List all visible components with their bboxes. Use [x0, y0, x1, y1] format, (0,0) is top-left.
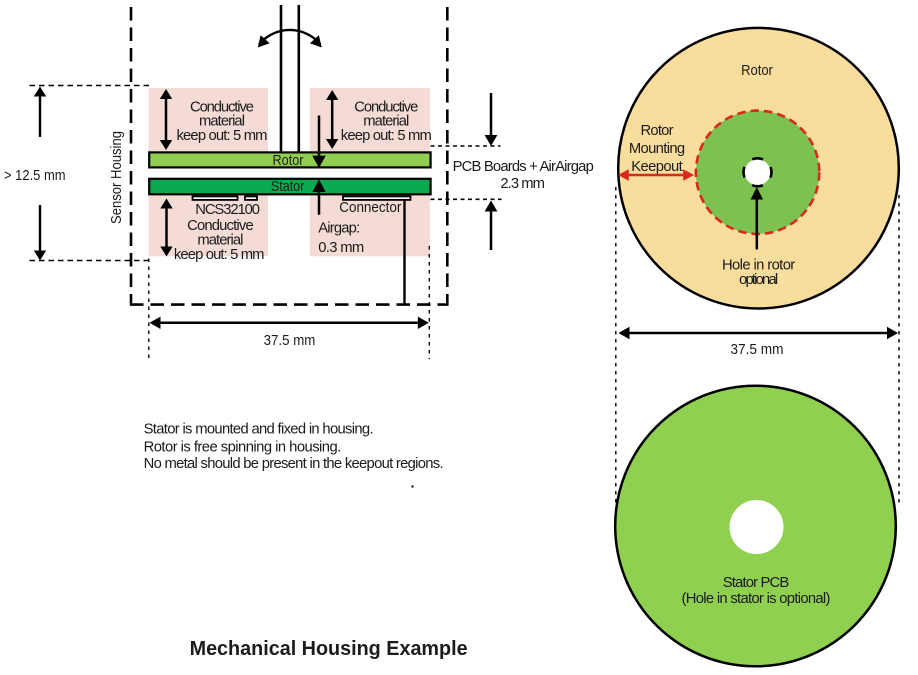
svg-text:Mechanical Housing Example: Mechanical Housing Example — [190, 638, 468, 660]
svg-text:Rotor: Rotor — [741, 63, 773, 79]
svg-text:(Hole in stator is optional): (Hole in stator is optional) — [682, 591, 831, 607]
svg-text:PCB Boards + AirAirgap: PCB Boards + AirAirgap — [453, 159, 594, 175]
svg-text:Rotor is free spinning in hous: Rotor is free spinning in housing. — [144, 440, 342, 456]
svg-text:keep out: 5 mm: keep out: 5 mm — [174, 247, 265, 263]
svg-text:Connector: Connector — [339, 200, 401, 216]
svg-text:Rotor: Rotor — [273, 153, 304, 169]
svg-text:NCS32100: NCS32100 — [195, 202, 260, 218]
svg-text:Stator PCB: Stator PCB — [723, 575, 790, 591]
svg-text:Rotor: Rotor — [641, 123, 674, 139]
svg-text:37.5 mm: 37.5 mm — [730, 342, 783, 358]
svg-text:37.5 mm: 37.5 mm — [264, 333, 316, 349]
svg-text:keep out: 5 mm: keep out: 5 mm — [177, 128, 268, 144]
svg-text:optional: optional — [739, 272, 778, 288]
svg-text:Keepout: Keepout — [631, 159, 682, 175]
svg-text:Stator is mounted and fixed in: Stator is mounted and fixed in housing. — [144, 422, 374, 438]
svg-text:> 12.5 mm: > 12.5 mm — [4, 168, 66, 184]
svg-text:Sensor Housing: Sensor Housing — [109, 131, 125, 224]
svg-text:Hole in rotor: Hole in rotor — [722, 258, 795, 274]
svg-text:No metal should be present in: No metal should be present in the keepou… — [144, 456, 444, 472]
svg-text:keep out: 5 mm: keep out: 5 mm — [341, 128, 432, 144]
svg-text:0.3 mm: 0.3 mm — [318, 240, 364, 256]
svg-text:Mounting: Mounting — [629, 141, 685, 157]
svg-text:2.3 mm: 2.3 mm — [500, 176, 545, 192]
svg-text:Stator: Stator — [271, 179, 305, 195]
svg-text:Airgap:: Airgap: — [318, 220, 360, 236]
